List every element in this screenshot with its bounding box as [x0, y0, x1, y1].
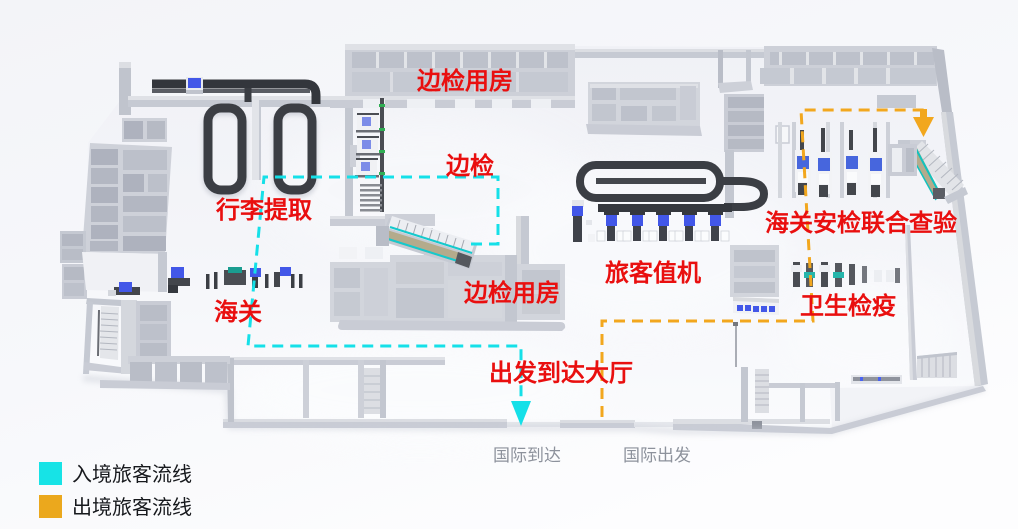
svg-text:国际到达: 国际到达 [493, 446, 561, 465]
svg-text:边检用房: 边检用房 [464, 279, 560, 307]
svg-text:入境旅客流线: 入境旅客流线 [72, 463, 192, 486]
svg-text:行李提取: 行李提取 [215, 196, 312, 224]
svg-text:边检用房: 边检用房 [417, 67, 513, 95]
svg-text:出发到达大厅: 出发到达大厅 [489, 359, 633, 387]
svg-text:卫生检疫: 卫生检疫 [800, 292, 896, 320]
svg-text:海关: 海关 [214, 298, 262, 326]
svg-text:旅客值机: 旅客值机 [605, 259, 701, 287]
svg-text:海关安检联合查验: 海关安检联合查验 [765, 209, 957, 237]
svg-text:出境旅客流线: 出境旅客流线 [72, 496, 192, 519]
svg-text:边检: 边检 [446, 152, 494, 180]
svg-text:国际出发: 国际出发 [623, 446, 691, 465]
